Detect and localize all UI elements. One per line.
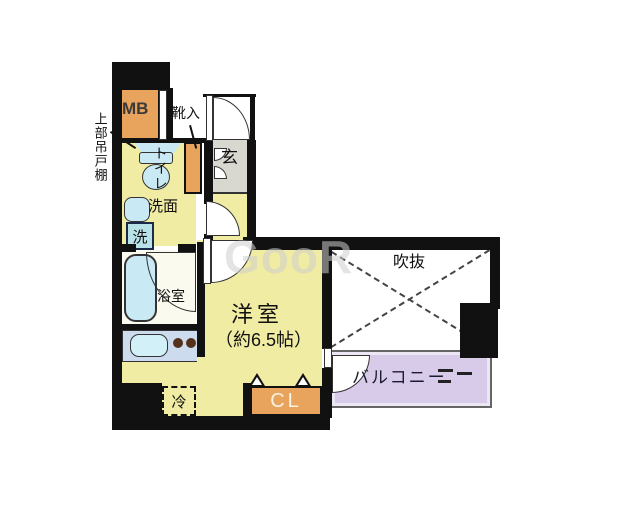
balcony-mark — [457, 372, 472, 375]
entrance-label: 玄 — [221, 149, 238, 167]
closet-box: CL — [250, 386, 322, 416]
shoe-cabinet-label: 靴入 — [172, 106, 200, 121]
wall-washroom-bath-left — [112, 244, 136, 252]
balcony-label: バルコニー — [352, 369, 447, 387]
balcony-door-leaf — [324, 348, 332, 368]
washbasin-label: 洗面 — [148, 199, 178, 215]
stove-burner — [186, 338, 196, 348]
entry-door-swing — [213, 97, 250, 140]
void-label: 吹抜 — [390, 255, 428, 272]
upper-cabinet-label: 上部吊戸棚 — [93, 112, 107, 182]
wall-bath-kitchen — [112, 324, 197, 330]
washbasin-fixture — [124, 197, 150, 222]
wall-room-balcony — [322, 368, 332, 418]
shoe-cabinet-box — [184, 142, 202, 194]
western-room-label: 洋室 — [231, 303, 283, 326]
kitchen-sink — [130, 334, 168, 357]
wall-top-cap — [112, 62, 170, 90]
watermark: GooR — [224, 233, 353, 281]
wall-mid-upper — [204, 140, 213, 204]
wall-right-outer — [490, 237, 500, 309]
wall-bottom — [112, 416, 330, 430]
room-door-leaf — [203, 238, 211, 284]
closet-door-marker — [249, 373, 265, 386]
stove-burner — [173, 338, 183, 348]
wall-pillar — [460, 303, 498, 358]
floor-plan: 洗 冷 CL MB 靴入 上部吊戸棚 — [0, 0, 630, 512]
wall-entry-right — [250, 94, 255, 142]
toilet-label: トイレ — [153, 146, 168, 191]
bathroom-label: 浴室 — [157, 289, 185, 304]
wall-genkan-right — [247, 140, 256, 240]
refrigerator-box: 冷 — [162, 386, 196, 416]
entry-door-leaf — [206, 95, 213, 141]
closet-door-marker — [295, 373, 311, 386]
meter-box-label: MB — [122, 100, 148, 118]
refrigerator-label: 冷 — [171, 391, 186, 412]
mb-door-leaf — [159, 90, 167, 140]
wall-closet-left — [243, 383, 251, 416]
wall-washroom-bath-right — [178, 244, 196, 252]
western-room-size-label: （約6.5帖） — [215, 331, 312, 350]
closet-label: CL — [270, 390, 302, 413]
